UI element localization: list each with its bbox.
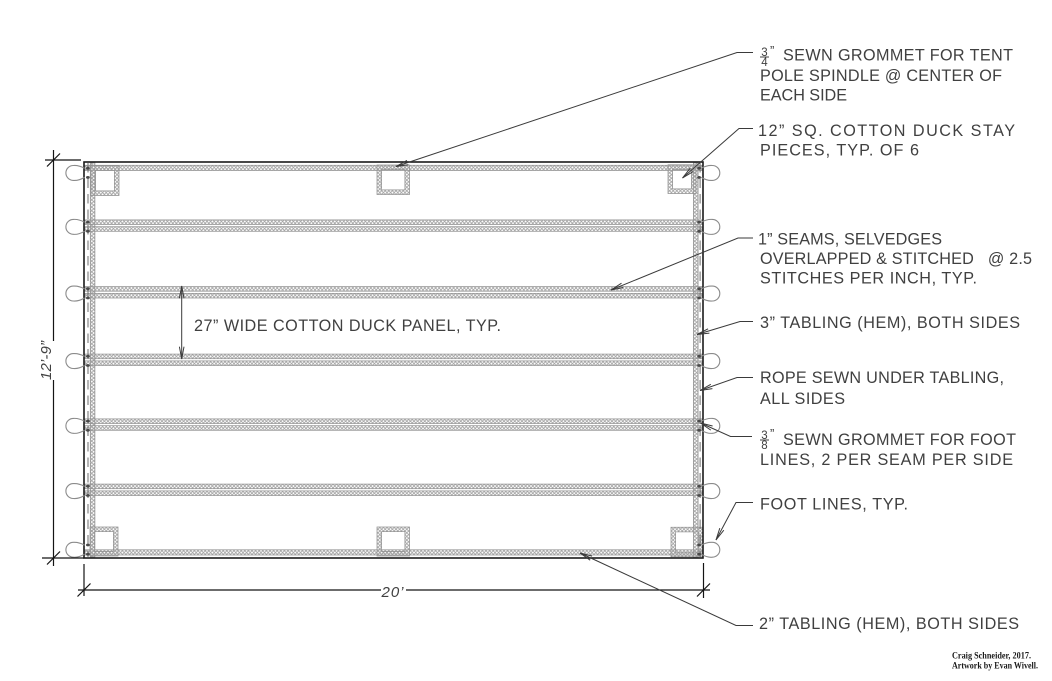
svg-text:ALL SIDES: ALL SIDES (760, 390, 845, 408)
svg-text:20’: 20’ (380, 584, 404, 601)
svg-text:ROPE SEWN UNDER TABLING,: ROPE SEWN UNDER TABLING, (760, 369, 1004, 387)
svg-text:2” TABLING (HEM), BOTH SIDES: 2” TABLING (HEM), BOTH SIDES (759, 615, 1019, 633)
svg-text:”: ” (770, 43, 774, 58)
svg-text:3” TABLING (HEM), BOTH SIDES: 3” TABLING (HEM), BOTH SIDES (760, 314, 1020, 332)
svg-text:1” SEAMS, SELVEDGES: 1” SEAMS, SELVEDGES (758, 231, 942, 249)
svg-text:FOOT LINES, TYP.: FOOT LINES, TYP. (760, 496, 908, 514)
svg-text:12’-9”: 12’-9” (38, 340, 55, 380)
svg-text:OVERLAPPED & STITCHED @ 2.5: OVERLAPPED & STITCHED @ 2.5 (760, 250, 1032, 268)
svg-text:”: ” (770, 426, 774, 441)
svg-text:12” SQ. COTTON DUCK STAY: 12” SQ. COTTON DUCK STAY (758, 122, 1015, 140)
svg-text:SEWN GROMMET FOR TENT: SEWN GROMMET FOR TENT (783, 47, 1013, 65)
svg-text:POLE SPINDLE @ CENTER OF: POLE SPINDLE @ CENTER OF (760, 67, 1002, 85)
svg-text:LINES, 2 PER SEAM PER SIDE: LINES, 2 PER SEAM PER SIDE (760, 451, 1013, 469)
svg-text:PIECES, TYP. OF 6: PIECES, TYP. OF 6 (760, 142, 919, 160)
svg-text:EACH SIDE: EACH SIDE (760, 87, 847, 105)
svg-text:SEWN GROMMET FOR FOOT: SEWN GROMMET FOR FOOT (783, 431, 1016, 449)
svg-text:Artwork by Evan Wivell.: Artwork by Evan Wivell. (952, 661, 1038, 672)
svg-text:27” WIDE COTTON DUCK PANEL, TY: 27” WIDE COTTON DUCK PANEL, TYP. (194, 317, 501, 335)
svg-text:STITCHES PER INCH, TYP.: STITCHES PER INCH, TYP. (760, 270, 977, 288)
